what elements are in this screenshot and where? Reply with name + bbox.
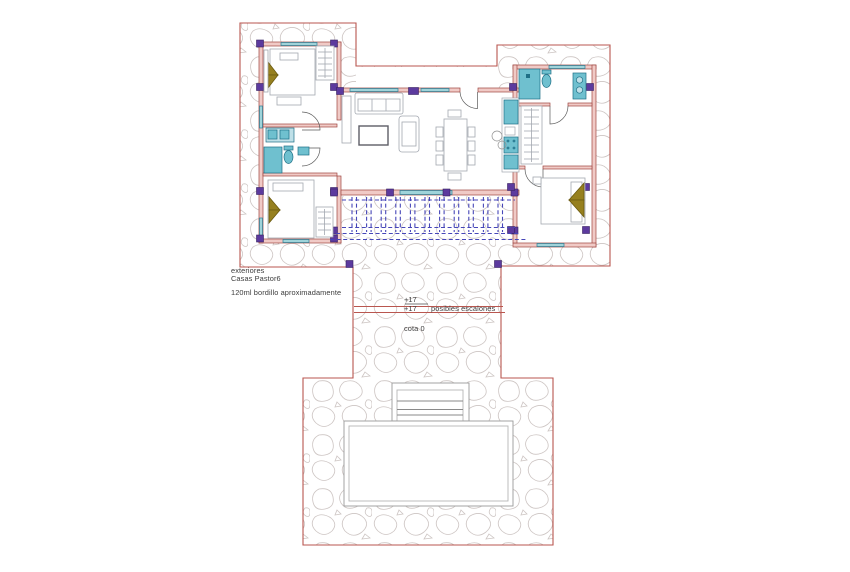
label-level-upper: +17 <box>404 295 417 304</box>
pillow <box>280 53 298 60</box>
bookshelf <box>342 96 351 143</box>
shelf <box>264 50 268 92</box>
sink <box>280 130 289 139</box>
dining-table <box>444 119 467 171</box>
sink <box>268 130 277 139</box>
label-steps-note: posibles escalones <box>431 304 495 313</box>
floor-plan-drawing: exteriores Casas Pastor6 120ml bordillo … <box>0 0 850 572</box>
label-project: Casas Pastor6 <box>231 274 281 283</box>
pillow <box>273 183 303 191</box>
wardrobe <box>316 46 334 80</box>
bedroom-right <box>533 177 585 224</box>
fridge <box>504 100 518 124</box>
pool-basin <box>344 421 513 506</box>
wardrobe <box>316 207 333 237</box>
toilet-bowl <box>284 151 293 164</box>
bathtub <box>519 69 540 99</box>
pool-steps <box>392 383 469 421</box>
dishwasher <box>504 155 518 169</box>
loveseat <box>399 116 419 152</box>
label-curb-note: 120ml bordillo aproximadamente <box>231 288 341 297</box>
sofa <box>355 93 403 114</box>
toilet-bowl <box>542 75 551 88</box>
toilet-tank <box>542 70 551 74</box>
floor-plan-sheet: exteriores Casas Pastor6 120ml bordillo … <box>0 0 850 572</box>
label-level-lower: +17 <box>404 304 417 313</box>
shower-tray <box>264 147 282 173</box>
label-datum: cota 0 <box>404 324 425 333</box>
closet <box>521 106 542 164</box>
nightstand <box>533 177 541 184</box>
double-vanity <box>573 73 586 99</box>
bench <box>277 97 301 105</box>
bidet <box>298 147 309 155</box>
kitchen-sink <box>505 127 515 135</box>
toilet-tank <box>284 146 293 150</box>
